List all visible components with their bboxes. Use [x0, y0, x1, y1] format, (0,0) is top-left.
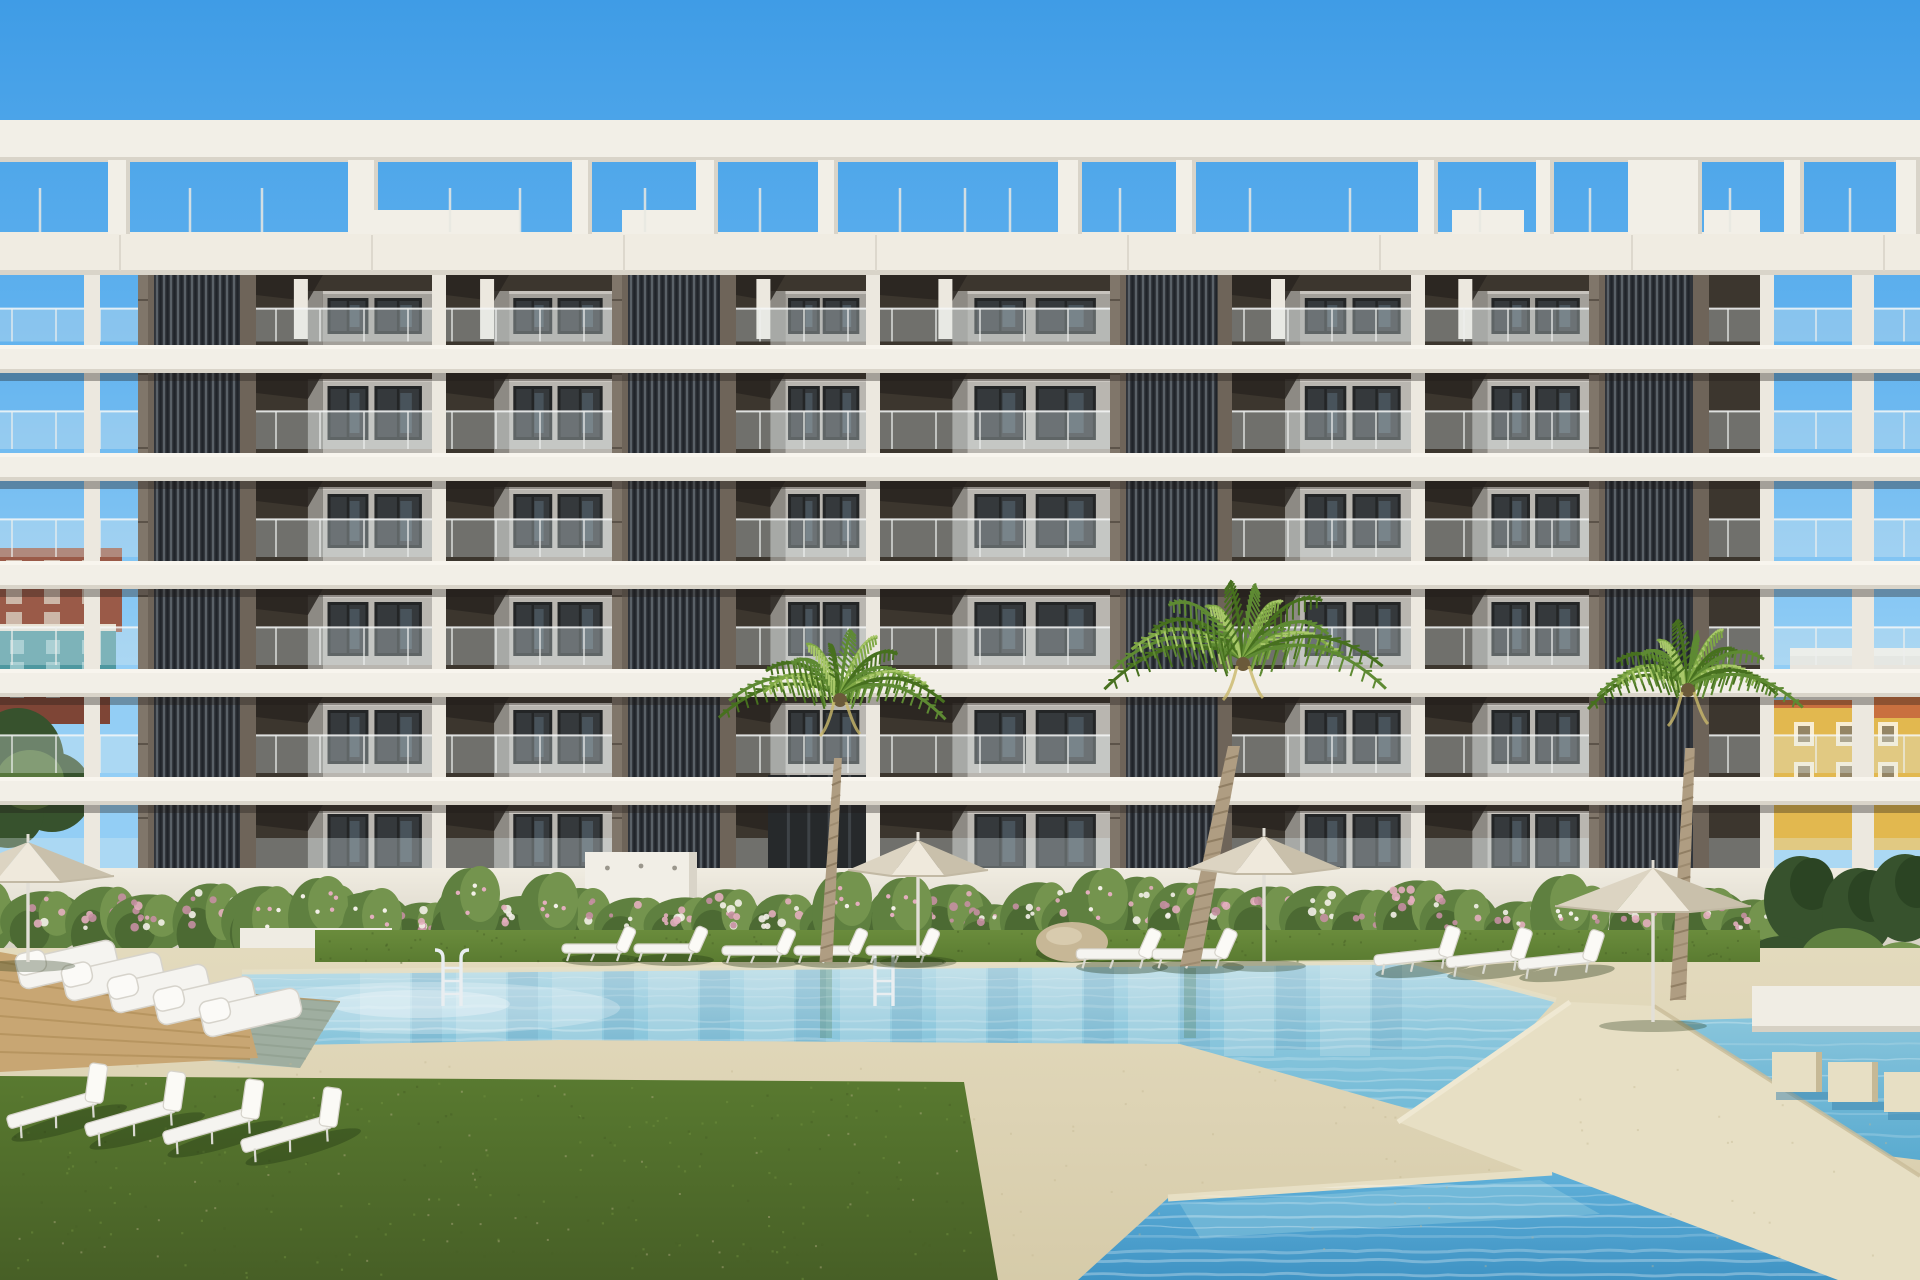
grass-texture — [899, 1105, 901, 1107]
sand-texture — [920, 1112, 922, 1114]
hedge-flower — [763, 914, 769, 920]
sand-texture — [731, 1070, 733, 1072]
grass-texture — [317, 1257, 319, 1259]
pool-reflection-dark — [892, 960, 922, 1050]
sand-texture — [646, 1253, 648, 1255]
sand-texture — [1581, 1129, 1583, 1131]
slab-highlight — [0, 561, 1920, 565]
architectural-render — [0, 0, 1920, 1280]
hedge-flower — [1320, 914, 1329, 923]
grass-texture — [623, 1160, 625, 1162]
sand-texture — [591, 1155, 593, 1157]
palm-leaflet — [1752, 654, 1753, 663]
grass-texture — [1657, 936, 1659, 938]
palm-leaflet — [1667, 642, 1668, 654]
lounger-shadow — [722, 956, 802, 968]
slab-shade — [0, 693, 1920, 697]
grass-texture — [483, 1255, 485, 1257]
grass-texture — [237, 1183, 239, 1185]
accent-bush — [308, 876, 348, 932]
accent-flower — [1556, 909, 1560, 913]
grass-texture — [771, 1117, 773, 1119]
pergola-sill — [622, 210, 710, 234]
pool-reflection-dark — [988, 960, 1018, 1050]
sand-texture — [157, 1255, 159, 1257]
grass-texture — [219, 1180, 221, 1182]
accent-flower — [886, 894, 890, 898]
grass-texture — [939, 1263, 941, 1265]
grass-texture — [450, 1113, 452, 1115]
grass-texture — [316, 1261, 318, 1263]
grass-texture — [847, 1275, 849, 1277]
grass-texture — [1665, 949, 1667, 951]
sand-texture — [1485, 1265, 1487, 1267]
palm-leaflet — [807, 662, 817, 663]
grass-texture — [100, 1222, 102, 1224]
hedge-flower — [131, 899, 137, 905]
grass-texture — [909, 1231, 911, 1233]
palm-crown-base — [1236, 657, 1250, 671]
grass-texture — [145, 1206, 147, 1208]
sand-texture — [498, 1240, 500, 1242]
hedge-flower — [188, 921, 196, 929]
grass-texture — [885, 1136, 887, 1138]
accent-flower — [1574, 917, 1578, 921]
hedge-flower — [1308, 907, 1317, 916]
grass-texture — [438, 1198, 440, 1200]
hedge-flower — [209, 896, 216, 903]
sand-texture — [1202, 1182, 1204, 1184]
hedge-flower — [609, 913, 613, 917]
lounger-shadow — [634, 954, 714, 966]
grass-texture — [579, 1141, 581, 1143]
grass-texture — [821, 1244, 823, 1246]
hedge-flower — [1439, 898, 1446, 905]
grass-texture — [388, 949, 390, 951]
sand-texture — [313, 1097, 315, 1099]
slab-highlight — [0, 345, 1920, 349]
accent-flower — [543, 901, 547, 905]
grass-texture — [446, 947, 448, 949]
sand-texture — [1428, 1207, 1430, 1209]
palm-leaflet — [1303, 621, 1312, 622]
grass-texture — [201, 1220, 203, 1222]
grass-texture — [755, 941, 757, 943]
palm-leaflet — [772, 664, 777, 665]
palm-leaflet — [1277, 602, 1278, 611]
grass-texture — [1297, 960, 1299, 962]
hedge-flower — [992, 915, 996, 919]
accent-flower — [890, 913, 894, 917]
sand-texture — [1111, 1191, 1113, 1193]
sand-texture — [1652, 1265, 1654, 1267]
grass-texture — [1622, 952, 1624, 954]
grass-texture — [272, 1195, 274, 1197]
grass-texture — [800, 1123, 802, 1125]
grass-texture — [525, 1216, 527, 1218]
hedge-flower — [634, 901, 642, 909]
grass-texture — [1207, 935, 1209, 937]
grass-texture — [69, 1152, 71, 1154]
hedge-flower — [1172, 905, 1180, 913]
sand-texture — [1274, 1079, 1276, 1081]
grass-texture — [631, 1267, 633, 1269]
block-water-shadow — [1776, 1092, 1828, 1100]
slab-highlight — [0, 777, 1920, 781]
palm-leaflet — [875, 638, 876, 645]
grass-texture — [68, 1168, 70, 1170]
grass-texture — [924, 1087, 926, 1089]
grass-texture — [587, 1219, 589, 1221]
accent-flower — [301, 894, 305, 898]
sand-texture — [1158, 1213, 1160, 1215]
sand-texture — [149, 1140, 151, 1142]
hedge-flower — [1621, 916, 1627, 922]
grass-texture — [742, 1243, 744, 1245]
grass-texture — [632, 1200, 634, 1202]
grass-texture — [1414, 940, 1416, 942]
grass-texture — [400, 962, 402, 964]
grass-texture — [460, 1231, 462, 1233]
grass-texture — [960, 1115, 962, 1117]
hedge-flower — [138, 914, 144, 920]
lounger-shadow — [794, 956, 874, 968]
grass-texture — [408, 959, 410, 961]
grass-texture — [1558, 946, 1560, 948]
grass-texture — [389, 1223, 391, 1225]
grass-texture — [270, 1211, 272, 1213]
accent-flower — [471, 891, 475, 895]
grass-texture — [946, 1233, 948, 1235]
hedge-flower — [1408, 899, 1415, 906]
accent-flower — [540, 907, 544, 911]
grass-texture — [377, 1228, 379, 1230]
grass-texture — [115, 1167, 117, 1169]
palm-leaflet — [1656, 654, 1665, 655]
pergola-pier-shade — [1550, 160, 1554, 234]
hedge-flower — [143, 923, 150, 930]
block-water-shadow — [1888, 1112, 1920, 1120]
palm-leaflet — [1151, 640, 1161, 641]
pergola-sill — [1452, 210, 1524, 234]
accent-flower — [256, 907, 260, 911]
grass-texture — [1605, 952, 1607, 954]
grass-texture — [580, 1169, 582, 1171]
grass-texture — [1343, 944, 1345, 946]
palm-leaflet — [771, 668, 772, 675]
hedge-flower — [44, 897, 49, 902]
hedge-flower — [1516, 921, 1520, 925]
grass-texture — [1662, 959, 1664, 961]
grass-texture — [1019, 958, 1021, 960]
grass-texture — [793, 1237, 795, 1239]
pool-reflection-dark — [1276, 960, 1306, 1050]
grass-texture — [84, 1190, 86, 1192]
grass-texture — [214, 1249, 216, 1251]
sand-texture — [547, 1239, 549, 1241]
palm-leaflet — [747, 684, 753, 685]
grass-texture — [500, 943, 502, 945]
grass-texture — [846, 1115, 848, 1117]
hedge-flower — [964, 901, 970, 907]
sand-texture — [366, 1260, 368, 1262]
accent-flower — [1569, 911, 1573, 915]
sand-texture — [1833, 1171, 1835, 1173]
sand-texture — [1791, 1142, 1793, 1144]
sand-texture — [1394, 1117, 1396, 1119]
grass-texture — [1578, 931, 1580, 933]
sand-texture — [1394, 1160, 1396, 1162]
hedge-flower — [1632, 915, 1640, 923]
hedge-flower — [1128, 901, 1133, 906]
accent-flower — [370, 915, 374, 919]
grass-texture — [900, 1179, 902, 1181]
palm-leaflet — [888, 652, 889, 661]
hedge-flower — [586, 912, 593, 919]
sand-texture — [1335, 1122, 1337, 1124]
hedge-flower — [1503, 916, 1511, 924]
accent-flower — [276, 908, 280, 912]
sand-texture — [1399, 1176, 1401, 1178]
pergola-sill — [1704, 210, 1760, 234]
grass-texture — [700, 1153, 702, 1155]
hedge-flower — [777, 918, 786, 927]
grass-texture — [223, 1272, 225, 1274]
sand-texture — [1580, 1121, 1582, 1123]
grass-texture — [349, 1253, 351, 1255]
grass-texture — [1464, 932, 1466, 934]
grass-texture — [631, 1087, 633, 1089]
hedge-flower — [706, 898, 712, 904]
grass-texture — [404, 1179, 406, 1181]
accent-flower — [545, 913, 549, 917]
grass-texture — [786, 1261, 788, 1263]
hedge-flower — [794, 906, 799, 911]
sand-texture — [344, 1154, 346, 1156]
grass-texture — [726, 1101, 728, 1103]
accent-flower — [1096, 916, 1100, 920]
grass-texture — [521, 1099, 523, 1101]
sand-texture — [1212, 1133, 1214, 1135]
sand-texture — [815, 1245, 817, 1247]
hedge-flower — [1391, 912, 1397, 918]
sand-texture — [446, 1240, 448, 1242]
grass-texture — [1709, 954, 1711, 956]
slab-underside-shadow — [0, 481, 1920, 489]
palm-leaflet — [1322, 629, 1327, 630]
accent-flower — [456, 891, 460, 895]
grass-texture — [1625, 952, 1627, 954]
module-top-edge — [785, 291, 866, 294]
palm-leaflet — [1758, 656, 1759, 663]
grass-texture — [368, 1120, 370, 1122]
grass-texture — [783, 1246, 785, 1248]
palm-leaflet — [1310, 623, 1318, 624]
hedge-flower — [145, 916, 149, 920]
grass-texture — [523, 939, 525, 941]
hedge-flower — [1643, 919, 1651, 927]
grass-texture — [963, 1121, 965, 1123]
sand-texture — [851, 1094, 853, 1096]
sand-texture — [936, 1172, 938, 1174]
grass-texture — [1464, 938, 1466, 940]
sand-texture — [1323, 1248, 1325, 1250]
grass-texture — [602, 1222, 604, 1224]
pergola-pier-shade — [1078, 160, 1082, 234]
accent-flower — [385, 922, 389, 926]
palm-leaflet — [893, 651, 896, 652]
grass-texture — [381, 1102, 383, 1104]
sand-texture — [567, 1229, 569, 1231]
sand-texture — [1344, 1106, 1346, 1108]
palm-leaflet — [875, 654, 876, 668]
sand-texture — [448, 1066, 450, 1068]
grass-texture — [750, 1247, 752, 1249]
hedge-flower — [1494, 917, 1501, 924]
hedge-flower — [1325, 899, 1332, 906]
slab-underside-shadow — [0, 697, 1920, 705]
slab-underside-shadow — [0, 373, 1920, 381]
palm-leaflet — [1207, 612, 1208, 633]
grass-texture — [883, 1157, 885, 1159]
hedge-flower — [1055, 898, 1060, 903]
grass-texture — [914, 1253, 916, 1255]
accent-flower — [353, 907, 357, 911]
accent-flower — [838, 886, 842, 890]
hedge-flower — [418, 918, 425, 925]
grass-texture — [365, 1136, 367, 1138]
module-top-edge — [509, 291, 612, 294]
hedge-flower — [58, 909, 65, 916]
sand-texture — [898, 1162, 900, 1164]
hedge-flower — [670, 919, 678, 927]
grass-texture — [1647, 953, 1649, 955]
grass-texture — [306, 1116, 308, 1118]
module-top-edge — [967, 291, 1110, 294]
grass-texture — [27, 1259, 29, 1261]
grass-texture — [131, 1084, 133, 1086]
palm-leaflet — [898, 678, 907, 679]
sand-texture — [80, 1251, 82, 1253]
grass-texture — [1241, 950, 1243, 952]
grass-texture — [71, 1229, 73, 1231]
palm-leaflet — [1134, 643, 1139, 644]
accent-flower — [839, 897, 843, 901]
sand-texture — [1013, 1234, 1015, 1236]
grass-texture — [701, 1122, 703, 1124]
grass-texture — [164, 1162, 166, 1164]
grass-texture — [357, 1109, 359, 1111]
hedge-flower — [195, 889, 203, 897]
grass-texture — [1536, 933, 1538, 935]
palm-leaflet — [1213, 617, 1214, 640]
grass-texture — [946, 1118, 948, 1120]
planter-wall-shade — [1752, 1026, 1920, 1032]
grass-texture — [776, 1251, 778, 1253]
accent-flower — [482, 887, 486, 891]
palm-leaflet — [1621, 659, 1622, 666]
sand-texture — [194, 1181, 196, 1183]
grass-texture — [924, 1242, 926, 1244]
hedge-flower — [735, 899, 742, 906]
sand-texture — [319, 1071, 321, 1073]
grass-texture — [463, 960, 465, 962]
accent-flower — [855, 902, 859, 906]
hedge-flower — [1013, 903, 1019, 909]
grass-texture — [961, 950, 963, 952]
pergola-pier-shade — [834, 160, 838, 234]
grass-texture — [812, 1111, 814, 1113]
grass-texture — [476, 930, 478, 932]
grass-texture — [1544, 933, 1546, 935]
grass-texture — [75, 1225, 77, 1227]
grass-texture — [114, 1202, 116, 1204]
grass-texture — [440, 943, 442, 945]
grass-texture — [628, 1207, 630, 1209]
grass-texture — [810, 1087, 812, 1089]
grass-texture — [1692, 941, 1694, 943]
hedge-flower — [1030, 911, 1034, 915]
hedge-flower — [158, 919, 165, 926]
grass-texture — [445, 1115, 447, 1117]
grass-texture — [847, 1082, 849, 1084]
grass-texture — [1126, 939, 1128, 941]
accent-flower — [1086, 890, 1090, 894]
sand-texture — [641, 1161, 643, 1163]
grass-texture — [1244, 954, 1246, 956]
palm-leaflet — [1320, 636, 1331, 637]
grass-texture — [537, 1095, 539, 1097]
palm-leaflet — [1153, 626, 1158, 627]
grass-texture — [747, 1200, 749, 1202]
grass-texture — [962, 1202, 964, 1204]
palm-leaflet — [884, 652, 885, 662]
sand-texture — [719, 1251, 721, 1253]
hedge-flower — [1149, 886, 1153, 890]
hedge-flower — [1222, 902, 1230, 910]
sand-texture — [1394, 1202, 1396, 1204]
sand-texture — [461, 1091, 463, 1093]
grass-texture — [969, 1232, 971, 1234]
floor-slab — [0, 345, 1920, 373]
sand-texture — [1587, 1143, 1589, 1145]
pergola-rail — [0, 120, 1920, 162]
grass-texture — [774, 1176, 776, 1178]
grass-texture — [224, 1151, 226, 1153]
sand-texture — [290, 1063, 292, 1065]
hedge-flower — [1353, 915, 1360, 922]
palm-leaflet — [1665, 641, 1666, 651]
grass-texture — [1208, 938, 1210, 940]
grass-texture — [355, 1236, 357, 1238]
sand-texture — [898, 1089, 900, 1091]
grass-texture — [689, 1133, 691, 1135]
grass-texture — [699, 1165, 701, 1167]
sand-texture — [1420, 1225, 1422, 1227]
hedge-flower — [966, 891, 972, 897]
stepping-block — [1828, 1062, 1878, 1102]
grass-texture — [479, 1176, 481, 1178]
grass-texture — [512, 1251, 514, 1253]
grass-texture — [275, 1260, 277, 1262]
grass-texture — [635, 1255, 637, 1257]
grass-texture — [21, 1096, 23, 1098]
sand-texture — [1123, 1070, 1125, 1072]
palm-leaflet — [1202, 608, 1203, 627]
palm-leaflet — [1159, 622, 1165, 623]
sand-texture — [1769, 1222, 1771, 1224]
sand-texture — [427, 1214, 429, 1216]
